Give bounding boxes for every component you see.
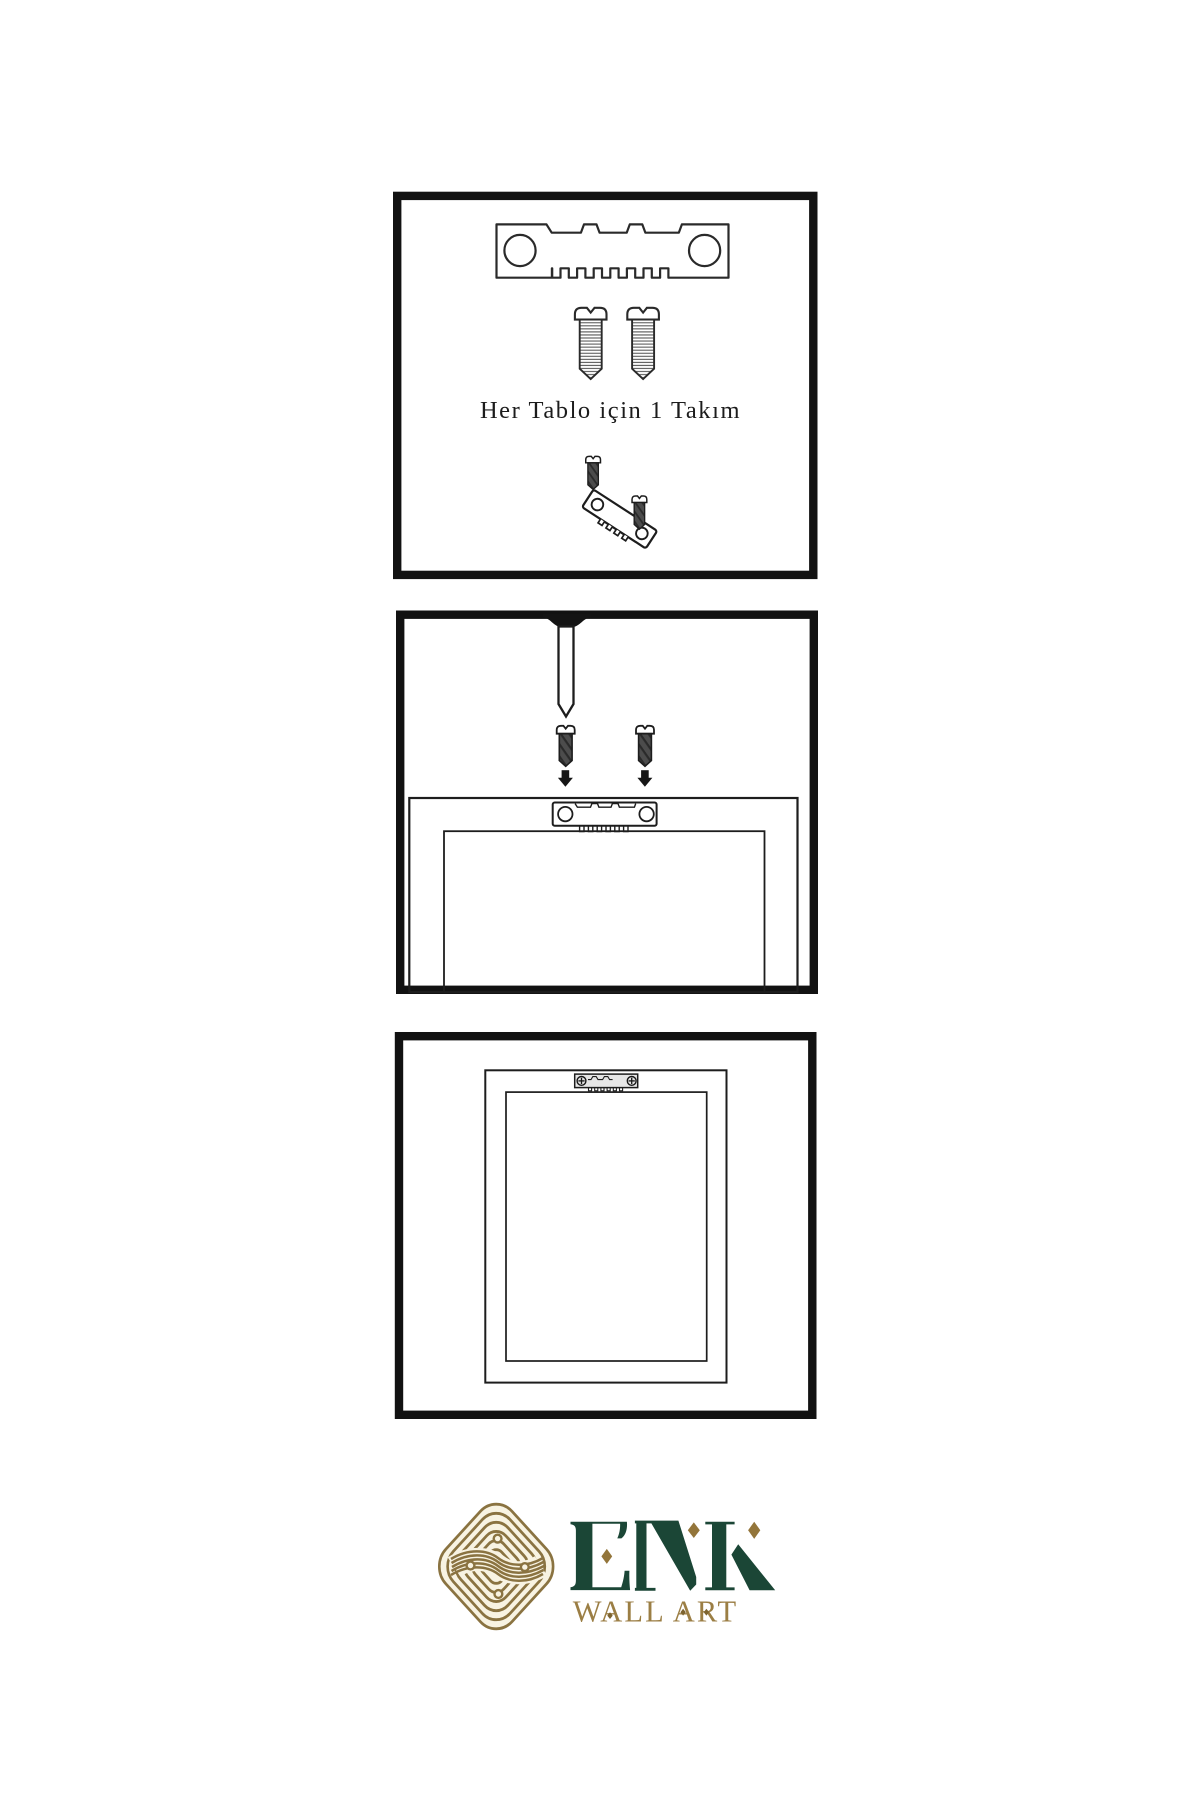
svg-text:Her Tablo için 1 Takım: Her Tablo için 1 Takım (480, 397, 741, 424)
svg-text:WALL ART: WALL ART (573, 1594, 738, 1628)
